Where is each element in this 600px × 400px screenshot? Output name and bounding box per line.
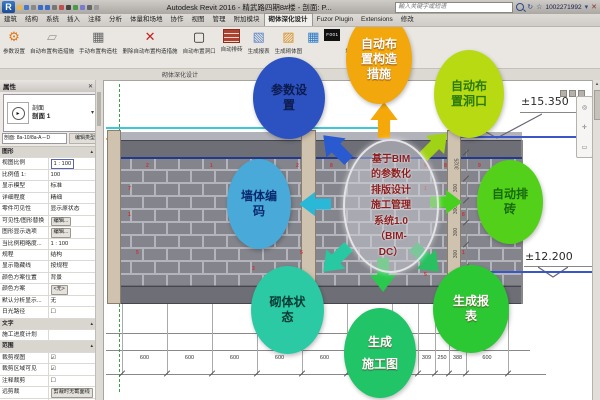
diagram-bubble-generate-report: 生成报表	[433, 265, 509, 353]
property-row: 规程结构	[0, 250, 96, 261]
property-value[interactable]: 剪裁时无截面线	[48, 387, 97, 397]
bubble-label-line: 自动排	[492, 187, 528, 202]
table-icon: ▦	[307, 29, 319, 45]
property-button[interactable]: 剪裁时无截面线	[51, 388, 93, 397]
vertical-dimension-label: 300	[453, 228, 459, 236]
bubble-label-line: 施工管理	[371, 198, 411, 214]
property-value[interactable]: 结构	[48, 250, 97, 260]
property-row: 详细程度精细	[0, 193, 96, 204]
3d-view-button[interactable]	[80, 5, 85, 10]
section-caret-icon[interactable]: ▴	[90, 147, 93, 157]
brick-number: 2	[146, 163, 149, 169]
bubble-label-line: 措施	[367, 67, 391, 82]
property-value[interactable]: 按规程	[48, 261, 97, 271]
bubble-label-line: 基于BIM	[372, 152, 410, 168]
quick-access-toolbar	[17, 5, 99, 10]
brick-number: 1	[128, 212, 131, 218]
diagram-bubble-system-center: 基于BIM的参数化排版设计施工管理系统1.0（BIM-DC）	[343, 139, 439, 273]
dimension-label: 388	[452, 355, 463, 361]
property-row: 显示模型标准	[0, 181, 96, 192]
property-row: 零件可见性显示原状态	[0, 204, 96, 215]
tool-label: 生成砌体图	[275, 47, 303, 55]
brick-number: 2	[296, 163, 299, 169]
ribbon-tab[interactable]: 协作	[167, 14, 188, 26]
property-row: 注释裁剪☐	[0, 376, 96, 387]
diagram-bubble-auto-brick-layout: 自动排砖	[477, 160, 543, 244]
title-bar: R Autodesk Revit 2016 - 精武路四期8#楼 - 剖面: P…	[0, 0, 600, 14]
tag-button[interactable]	[73, 5, 78, 10]
scroll-up-icon[interactable]: ▴	[593, 80, 600, 89]
ribbon-tab[interactable]: 修改	[397, 14, 418, 26]
tool-button-table[interactable]: ▦	[306, 28, 320, 48]
bubble-label-line: 置	[283, 98, 295, 113]
bubble-label-line: 施工图	[362, 353, 398, 375]
print-button[interactable]	[52, 5, 57, 10]
account-caret-icon[interactable]: ▾	[585, 3, 589, 12]
property-row: 颜色方案位置背景	[0, 273, 96, 284]
revit-app-button[interactable]: R	[2, 1, 15, 13]
brick-number: 7	[128, 186, 131, 192]
properties-title: 属性	[3, 81, 16, 91]
brick-number: 9	[478, 163, 481, 169]
diagram-bubble-auto-openings: 自动布置洞口	[434, 50, 504, 138]
property-section[interactable]: 图形▴	[0, 147, 96, 158]
property-label: 比例值 1:	[0, 170, 48, 180]
tool-label: 自动布置构造措施	[30, 47, 74, 55]
property-label: 日光路径	[0, 307, 48, 317]
instance-selector-row: 剖面: 8a-10/8a-A－D 编辑类型	[2, 133, 101, 144]
section-caret-icon[interactable]: ▴	[90, 341, 93, 351]
search-input[interactable]	[395, 2, 513, 13]
brick-number: 3	[252, 266, 255, 272]
bubble-label-line: 置构造	[361, 52, 397, 67]
bubble-label-line: 排版设计	[371, 183, 411, 199]
property-row: 远剪裁剪裁时无截面线	[0, 387, 96, 398]
ribbon-tab-bar: 建筑结构系统插入注释分析体量和场地协作视图管理附加模块砌体深化设计Fuzor P…	[0, 14, 600, 27]
type-selector[interactable]: ▸ 剖面 剖面 1 ▾	[3, 94, 97, 132]
property-row: 颜色方案<无>	[0, 284, 96, 295]
property-button[interactable]: 编辑...	[51, 228, 72, 237]
search-icon[interactable]	[516, 3, 524, 11]
doc-icon: ▨	[282, 29, 294, 45]
dimension-label: 309	[421, 355, 432, 361]
property-value[interactable]: 背景	[48, 273, 97, 283]
list-button[interactable]	[94, 5, 99, 10]
section-type-icon: ▸	[7, 102, 29, 124]
panel-icon: ▱	[47, 29, 57, 45]
window-title: Autodesk Revit 2016 - 精武路四期8#楼 - 剖面: P..…	[103, 2, 395, 13]
elevation-label: ±12.200	[525, 250, 573, 263]
tool-button-panel[interactable]: ▱自动布置构造措施	[29, 28, 75, 56]
section-caret-icon[interactable]: ▴	[90, 319, 93, 329]
dimension-label: 600	[481, 355, 492, 361]
property-value[interactable]: ☐	[48, 376, 97, 386]
tool-label: 生成报表	[248, 47, 270, 55]
property-label: 默认分析显示...	[0, 296, 48, 306]
property-label: 视图比例	[0, 158, 48, 168]
property-value[interactable]: <无>	[48, 284, 97, 294]
steering-wheel-icon[interactable]: ◎	[582, 104, 587, 111]
ribbon-tab[interactable]: 注释	[84, 14, 105, 26]
sync-button[interactable]	[31, 5, 36, 10]
property-row: 裁剪视图☑	[0, 353, 96, 364]
brick-number: 8	[462, 212, 465, 218]
tool-button-doc[interactable]: ▨生成砌体图	[274, 28, 304, 56]
dimension-label: 600	[319, 355, 330, 361]
property-label: 注释裁剪	[0, 376, 48, 386]
property-label: 远剪裁	[0, 387, 48, 397]
dimension-gridline	[212, 304, 213, 374]
dimension-label: 600	[229, 355, 240, 361]
property-row: 显示隐藏线按规程	[0, 261, 96, 272]
dimension-gridline	[418, 304, 419, 374]
section-button[interactable]	[87, 5, 92, 10]
brick-number: 5	[424, 272, 427, 278]
property-grid: 图形▴视图比例1 : 100比例值 1:100显示模型标准详细程度精细零件可见性…	[0, 146, 96, 400]
property-value[interactable]: ☑	[48, 353, 97, 363]
diagram-bubble-parameter-setting: 参数设置	[253, 57, 325, 139]
brick-number: 5	[136, 250, 139, 256]
refresh-icon[interactable]: ↻	[527, 3, 533, 12]
brick-number: 8	[330, 163, 333, 169]
property-value[interactable]: 显示原状态	[48, 204, 97, 214]
property-row: 施工进度计划	[0, 330, 96, 341]
brick-number: 5	[300, 250, 303, 256]
f001-icon: F001	[324, 29, 340, 41]
section-label: 范围	[0, 341, 50, 351]
brick-icon	[223, 29, 240, 43]
property-section[interactable]: 范围▴	[0, 341, 96, 352]
dimension-line	[106, 374, 546, 375]
diagram-bubble-masonry-status: 砌体状态	[251, 266, 324, 354]
property-label: 图形显示选项	[0, 227, 48, 237]
tool-button-f001[interactable]: F001	[323, 28, 341, 44]
bubble-label-line: 砖	[504, 202, 516, 217]
close-icon[interactable]: ✕	[591, 3, 597, 12]
dimension-gridline	[122, 304, 123, 374]
property-label: 显示隐藏线	[0, 261, 48, 271]
bubble-label-line: 系统1.0	[374, 214, 408, 230]
brick-number: 1	[462, 250, 465, 256]
property-label: 可见性/图形替换	[0, 216, 48, 226]
report-icon: ▧	[252, 29, 264, 45]
ribbon-tab[interactable]: Fuzor Plugin	[313, 14, 358, 26]
brick-number: 8	[444, 163, 447, 169]
ribbon-tab[interactable]: 系统	[42, 14, 63, 26]
diagram-bubble-auto-construction-measures: 自动布置构造措施	[346, 14, 412, 104]
bubble-label-line: 的参数化	[371, 167, 411, 183]
property-row: 图形显示选项编辑...	[0, 227, 96, 238]
ribbon-tab[interactable]: 体量和场地	[126, 14, 167, 26]
bubble-label-line: 置洞口	[451, 94, 487, 109]
tool-label: 自动布置洞口	[183, 47, 216, 55]
dimension-label: 600	[274, 355, 285, 361]
redo-button[interactable]	[45, 5, 50, 10]
property-label: 颜色方案	[0, 284, 48, 294]
tool-label: 删除自动布置构造措施	[123, 47, 178, 55]
tool-button-gear[interactable]: ⚙参数设置	[2, 28, 26, 56]
dimension-label: 600	[184, 355, 195, 361]
property-row: 视图比例1 : 100	[0, 158, 96, 169]
property-value[interactable]: 编辑...	[48, 216, 97, 226]
property-row: 日光路径☐	[0, 307, 96, 318]
bubble-label-line: 生成	[368, 331, 392, 353]
type-dropdown-icon[interactable]: ▾	[91, 109, 94, 116]
panel-label: 砌体深化设计	[100, 70, 260, 79]
property-value[interactable]: ☐	[48, 307, 97, 317]
type-category: 剖面	[32, 106, 44, 112]
property-value[interactable]: 标准	[48, 181, 97, 191]
tool-button-report[interactable]: ▧生成报表	[247, 28, 271, 56]
bubble-label-line: 自动布	[361, 37, 397, 52]
bubble-label-line: 自动布	[451, 79, 487, 94]
property-section[interactable]: 文字▴	[0, 319, 96, 330]
property-label: 裁剪区域可见	[0, 364, 48, 374]
scrollbar-thumb[interactable]	[594, 90, 600, 120]
ribbon-tab[interactable]: 砌体深化设计	[264, 13, 313, 26]
section-label: 文字	[0, 319, 50, 329]
tool-button-brick[interactable]: 自动排砖	[220, 28, 244, 54]
opening-icon: ▢	[193, 29, 205, 45]
ribbon-tab[interactable]: Extensions	[357, 14, 397, 26]
type-name: 剖面 1	[32, 113, 50, 120]
vertical-dimension-label: 3025	[455, 158, 461, 169]
pan-icon[interactable]: ✛	[582, 124, 587, 131]
undo-button[interactable]	[38, 5, 43, 10]
ribbon-tab[interactable]: 插入	[63, 14, 84, 26]
property-value[interactable]: 编辑...	[48, 227, 97, 237]
vertical-dimension-label: 300	[453, 250, 459, 258]
constructional-column	[107, 130, 121, 304]
save-button[interactable]	[24, 5, 29, 10]
title-bar-right: ↻ ☆ 1002271992 ▾ ✕	[395, 2, 597, 13]
diagram-bubble-wall-coding: 墙体编码	[227, 159, 291, 249]
tool-button-delete[interactable]: ✕删除自动布置构造措施	[122, 28, 179, 56]
property-value[interactable]: 100	[48, 170, 97, 180]
property-row: 当比例粗略度...1 : 100	[0, 239, 96, 250]
property-value[interactable]: 1 : 100	[48, 239, 97, 249]
property-input[interactable]: 1 : 100	[51, 159, 75, 169]
favorites-star-icon[interactable]: ☆	[536, 3, 542, 12]
delete-icon: ✕	[145, 29, 156, 45]
property-button[interactable]: 编辑...	[51, 217, 72, 226]
property-row: 可见性/图形替换编辑...	[0, 216, 96, 227]
tool-label: 参数设置	[3, 47, 25, 55]
property-row: 裁剪区域可见☑	[0, 364, 96, 375]
property-label: 零件可见性	[0, 204, 48, 214]
property-label: 当比例粗略度...	[0, 239, 48, 249]
revit-window: R Autodesk Revit 2016 - 精武路四期8#楼 - 剖面: P…	[0, 0, 600, 400]
bubble-label-line: 表	[465, 309, 477, 324]
section-label: 图形	[0, 147, 50, 157]
ribbon-tab[interactable]: 附加模块	[230, 14, 264, 26]
property-value[interactable]: 精细	[48, 193, 97, 203]
level-line-cyan	[106, 127, 380, 129]
tool-label: 自动排砖	[221, 45, 243, 53]
properties-header: 属性 ✕	[0, 80, 103, 92]
property-row: 默认分析显示...无	[0, 296, 96, 307]
property-label: 显示模型	[0, 181, 48, 191]
ribbon-tab[interactable]: 分析	[105, 14, 126, 26]
close-properties-icon[interactable]: ✕	[88, 83, 93, 90]
ribbon-tab[interactable]: 视图	[188, 14, 209, 26]
text-button[interactable]	[66, 5, 71, 10]
property-button[interactable]: <无>	[51, 285, 68, 294]
diagram-bubble-generate-shop-drawing: 生成施工图	[344, 308, 416, 398]
property-value[interactable]	[48, 330, 97, 340]
property-row: 比例值 1:100	[0, 170, 96, 181]
dimension-label: 600	[139, 355, 150, 361]
bubble-label-line: 生成报	[453, 294, 489, 309]
property-label: 颜色方案位置	[0, 273, 48, 283]
property-value[interactable]: 无	[48, 296, 97, 306]
bubble-label-line: 墙体编	[241, 189, 277, 204]
dimension-gridline	[167, 304, 168, 374]
ribbon-tab[interactable]: 管理	[209, 14, 230, 26]
bubble-label-line: DC）	[379, 245, 403, 261]
view-selector[interactable]: 剖面: 8a-10/8a-A－D	[2, 133, 67, 144]
open-button[interactable]	[17, 5, 22, 10]
brick-number: 1	[210, 163, 213, 169]
ribbon-tools: ⚙参数设置▱自动布置构造措施▦手动布置构造柱✕删除自动布置构造措施▢自动布置洞口…	[2, 28, 368, 66]
ribbon-tab[interactable]: 结构	[21, 14, 42, 26]
tool-button-opening[interactable]: ▢自动布置洞口	[182, 28, 217, 56]
property-label: 详细程度	[0, 193, 48, 203]
tool-label: 手动布置构造柱	[79, 47, 118, 55]
property-label: 裁剪视图	[0, 353, 48, 363]
zoom-icon[interactable]: ▭	[582, 144, 588, 151]
property-label: 施工进度计划	[0, 330, 48, 340]
column-icon: ▦	[92, 29, 104, 45]
property-label: 规程	[0, 250, 48, 260]
bubble-label-line: 参数设	[271, 83, 307, 98]
gear-icon: ⚙	[8, 29, 20, 45]
tool-button-column[interactable]: ▦手动布置构造柱	[78, 28, 119, 56]
vertical-scrollbar[interactable]: ▴	[592, 80, 600, 400]
dimension-label: 250	[436, 355, 447, 361]
bubble-label-line: （BIM-	[375, 229, 407, 245]
vertical-dimension-label: 300	[453, 184, 459, 192]
bubble-label-line: 码	[253, 204, 265, 219]
bubble-label-line: 砌体状	[269, 295, 305, 310]
bubble-label-line: 态	[281, 310, 293, 325]
property-value[interactable]: ☑	[48, 364, 97, 374]
measure-button[interactable]	[59, 5, 64, 10]
ribbon-tab[interactable]: 建筑	[0, 14, 21, 26]
user-account[interactable]: 1002271992	[545, 4, 581, 11]
properties-scrollbar[interactable]	[95, 80, 103, 400]
properties-panel: 属性 ✕ ▸ 剖面 剖面 1 ▾ 剖面: 8a-10/8a-A－D 编辑类型 图…	[0, 80, 104, 400]
property-value[interactable]: 1 : 100	[48, 158, 97, 168]
navigation-bar[interactable]: ◎ ✛ ▭	[576, 96, 593, 158]
